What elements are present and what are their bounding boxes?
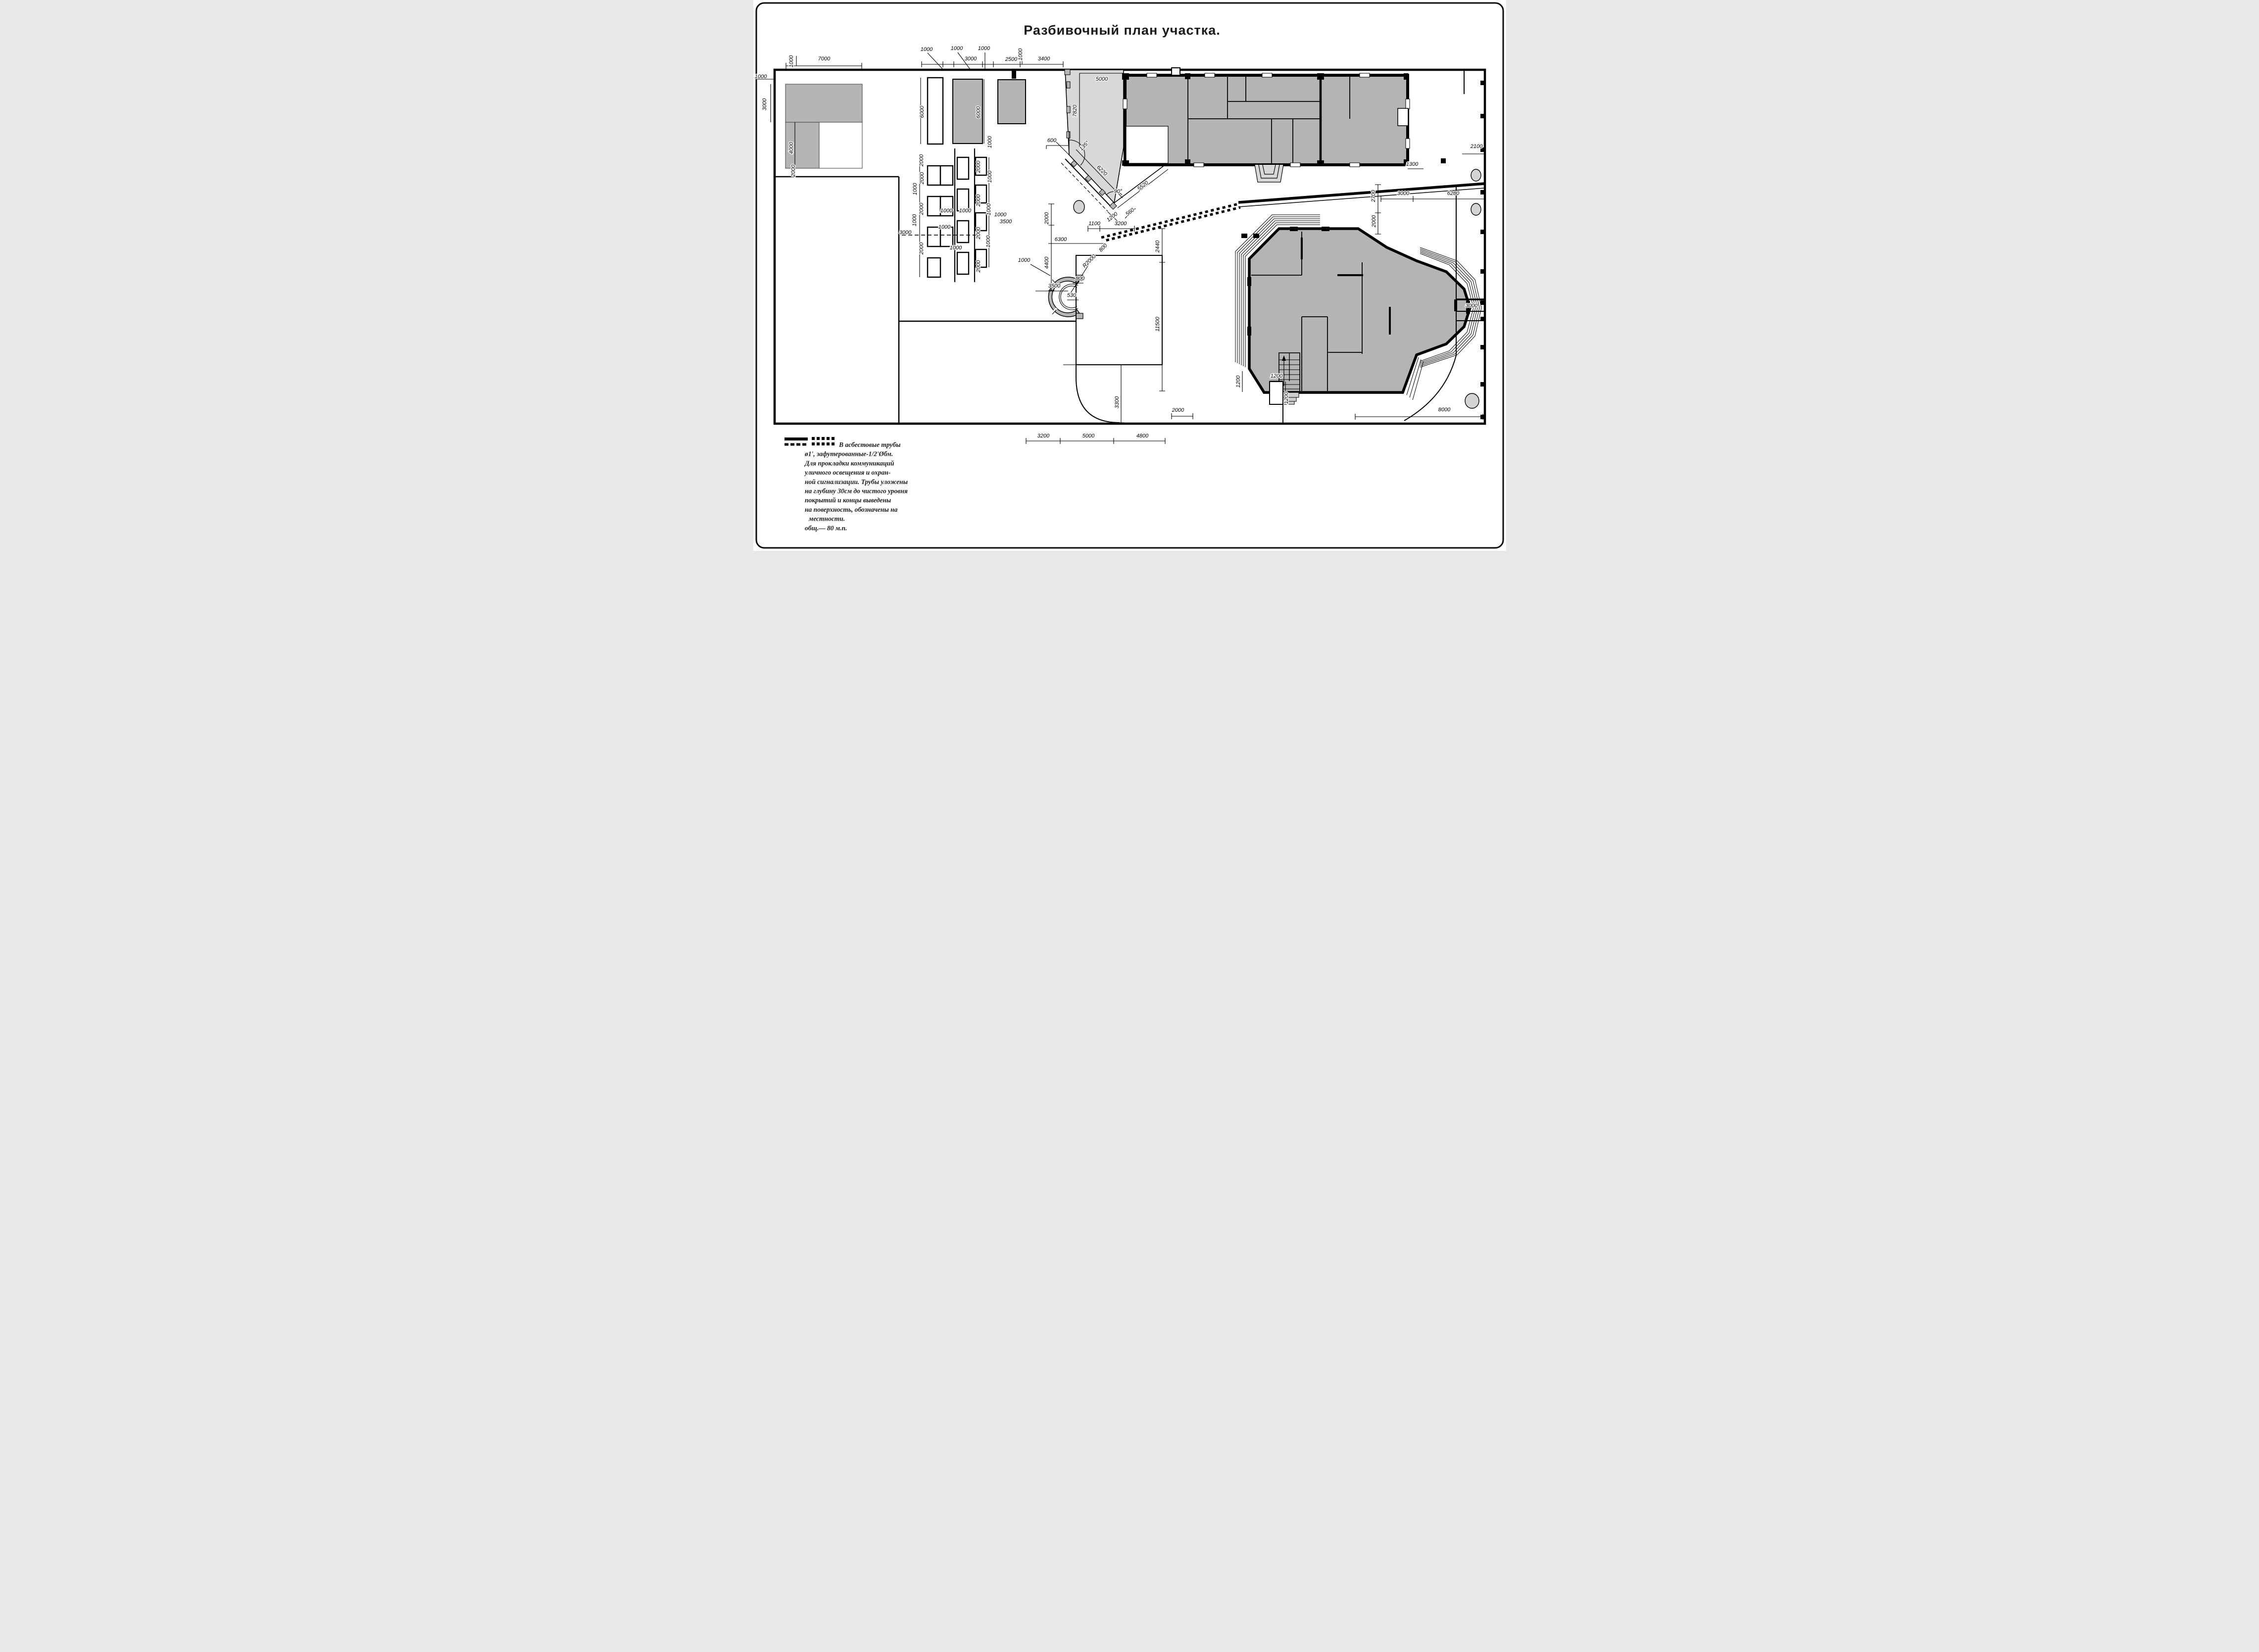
dim-label: 3300 — [1114, 396, 1120, 408]
utility-pillar — [1441, 158, 1446, 163]
topleft-bed — [786, 84, 862, 168]
entrance-porch — [1255, 165, 1283, 182]
dim-label: 5000 — [1095, 76, 1108, 82]
dim-label: 2000 — [919, 202, 925, 215]
dim-label: 7820 — [1072, 104, 1078, 117]
dim-label: 2000 — [1371, 215, 1377, 228]
dim-label: 2000 — [919, 154, 925, 167]
dim-label: 2000 — [1044, 212, 1050, 225]
dim-label: 3500 — [999, 219, 1012, 225]
dim-label: 1000 — [920, 47, 933, 52]
dim-label: 11500 — [1155, 316, 1161, 332]
dim-label: 2000 — [976, 160, 982, 173]
dim-label: 5000 — [1082, 433, 1094, 439]
dim-label: 4000 — [788, 142, 794, 154]
legend-line: местности. — [808, 515, 845, 523]
dim-label: 1300 — [1406, 161, 1418, 167]
dim-label: 1000 — [950, 46, 963, 51]
dim-label: 90° — [1114, 189, 1122, 194]
dim-label: 1000 — [940, 208, 952, 214]
dim-label: 4400 — [1044, 256, 1050, 269]
existing-house — [1122, 68, 1410, 182]
dim-label: 2000 — [976, 260, 982, 273]
dim-label: 3000 — [762, 98, 768, 110]
dim-label: 1000 — [788, 55, 794, 67]
dim-label: 6000 — [976, 106, 982, 118]
dim-label: 2000 — [919, 172, 925, 185]
dim-label: 1000 — [912, 214, 918, 226]
legend-line: уличного освещения и охран- — [804, 469, 891, 476]
legend-line: В асбестовые трубы — [838, 441, 901, 448]
dim-label: 3000 — [1465, 303, 1477, 309]
dim-label: 2000 — [976, 227, 982, 240]
dim-label: 1000 — [938, 224, 950, 230]
dim-label: 1000 — [987, 170, 993, 183]
dim-label: 1200 — [1283, 391, 1289, 404]
dim-label: 1000 — [985, 235, 991, 247]
basement-pit — [1270, 382, 1283, 404]
dim-label: 1000 — [1018, 48, 1024, 60]
dim-label: 1000 — [949, 245, 962, 251]
dim-label: 2500 — [1004, 56, 1017, 62]
right-niche — [1398, 108, 1408, 126]
dim-label: 800 — [1075, 276, 1084, 282]
legend-line: общ.— 80 м.п. — [805, 524, 847, 532]
dim-label: 2000 — [919, 242, 925, 255]
dim-label: 600 — [1047, 138, 1056, 144]
tree — [1471, 169, 1481, 181]
dim-label: 7000 — [818, 56, 830, 62]
dim-label: 1200 — [1235, 375, 1241, 388]
dim-label: 1000 — [987, 136, 993, 148]
page-title: Разбивочный план участка. — [1024, 23, 1221, 38]
tree — [1465, 393, 1479, 408]
dim-label: 3000 — [899, 230, 911, 236]
dim-label: 2000 — [790, 164, 796, 177]
dim-label: 3000 — [964, 56, 977, 62]
dim-label: 2700 — [1371, 190, 1376, 202]
dim-label: 1000 — [994, 212, 1006, 218]
dim-label: 3500 — [1048, 283, 1060, 289]
dim-label: 2100 — [1470, 144, 1482, 149]
dim-label: 1200 — [1270, 373, 1282, 379]
legend-line: ной сигнализации. Трубы уложены — [805, 478, 908, 486]
tree — [1074, 200, 1084, 213]
legend-line: на поверхность, обозначены на — [805, 506, 898, 513]
legend-line: покрытий и концы выведены — [805, 496, 891, 504]
dim-label: 1000 — [986, 203, 992, 215]
dim-label: 3200 — [1114, 221, 1127, 227]
dim-label: 1000 — [754, 74, 767, 80]
dim-label: 6000 — [919, 105, 925, 118]
dim-label: 530 — [1067, 292, 1076, 298]
legend-line: ø1', зафутерованные-1/2'Øбм. — [804, 450, 893, 458]
dim-label: 1000 — [959, 208, 971, 214]
dim-label: 6280 — [1447, 191, 1459, 196]
legend-line: Для прокладки коммуникаций — [804, 459, 894, 467]
dim-label: 1100 — [1088, 221, 1101, 227]
dim-label: 3200 — [1037, 433, 1049, 439]
tree — [1471, 203, 1481, 215]
dim-label: 3000 — [1397, 191, 1409, 196]
dim-label: 1000 — [1018, 257, 1030, 263]
dim-label: 8000 — [1438, 407, 1450, 413]
drawing-sheet: Разбивочный план участка. — [753, 0, 1506, 551]
dim-label: 2440 — [1155, 240, 1161, 253]
legend-line: на глубину 30см до чистого уровня — [805, 487, 908, 495]
dim-label: 3400 — [1037, 56, 1050, 62]
dim-label: 1000 — [912, 183, 918, 195]
dim-label: 2000 — [1171, 407, 1184, 413]
dim-label: 1000 — [978, 46, 990, 51]
chimney — [1172, 68, 1180, 75]
dim-label: 2000 — [976, 194, 982, 207]
dim-label: 6300 — [1054, 237, 1067, 243]
dim-label: 4800 — [1136, 433, 1148, 439]
site-plan-canvas: Разбивочный план участка. — [753, 0, 1506, 551]
